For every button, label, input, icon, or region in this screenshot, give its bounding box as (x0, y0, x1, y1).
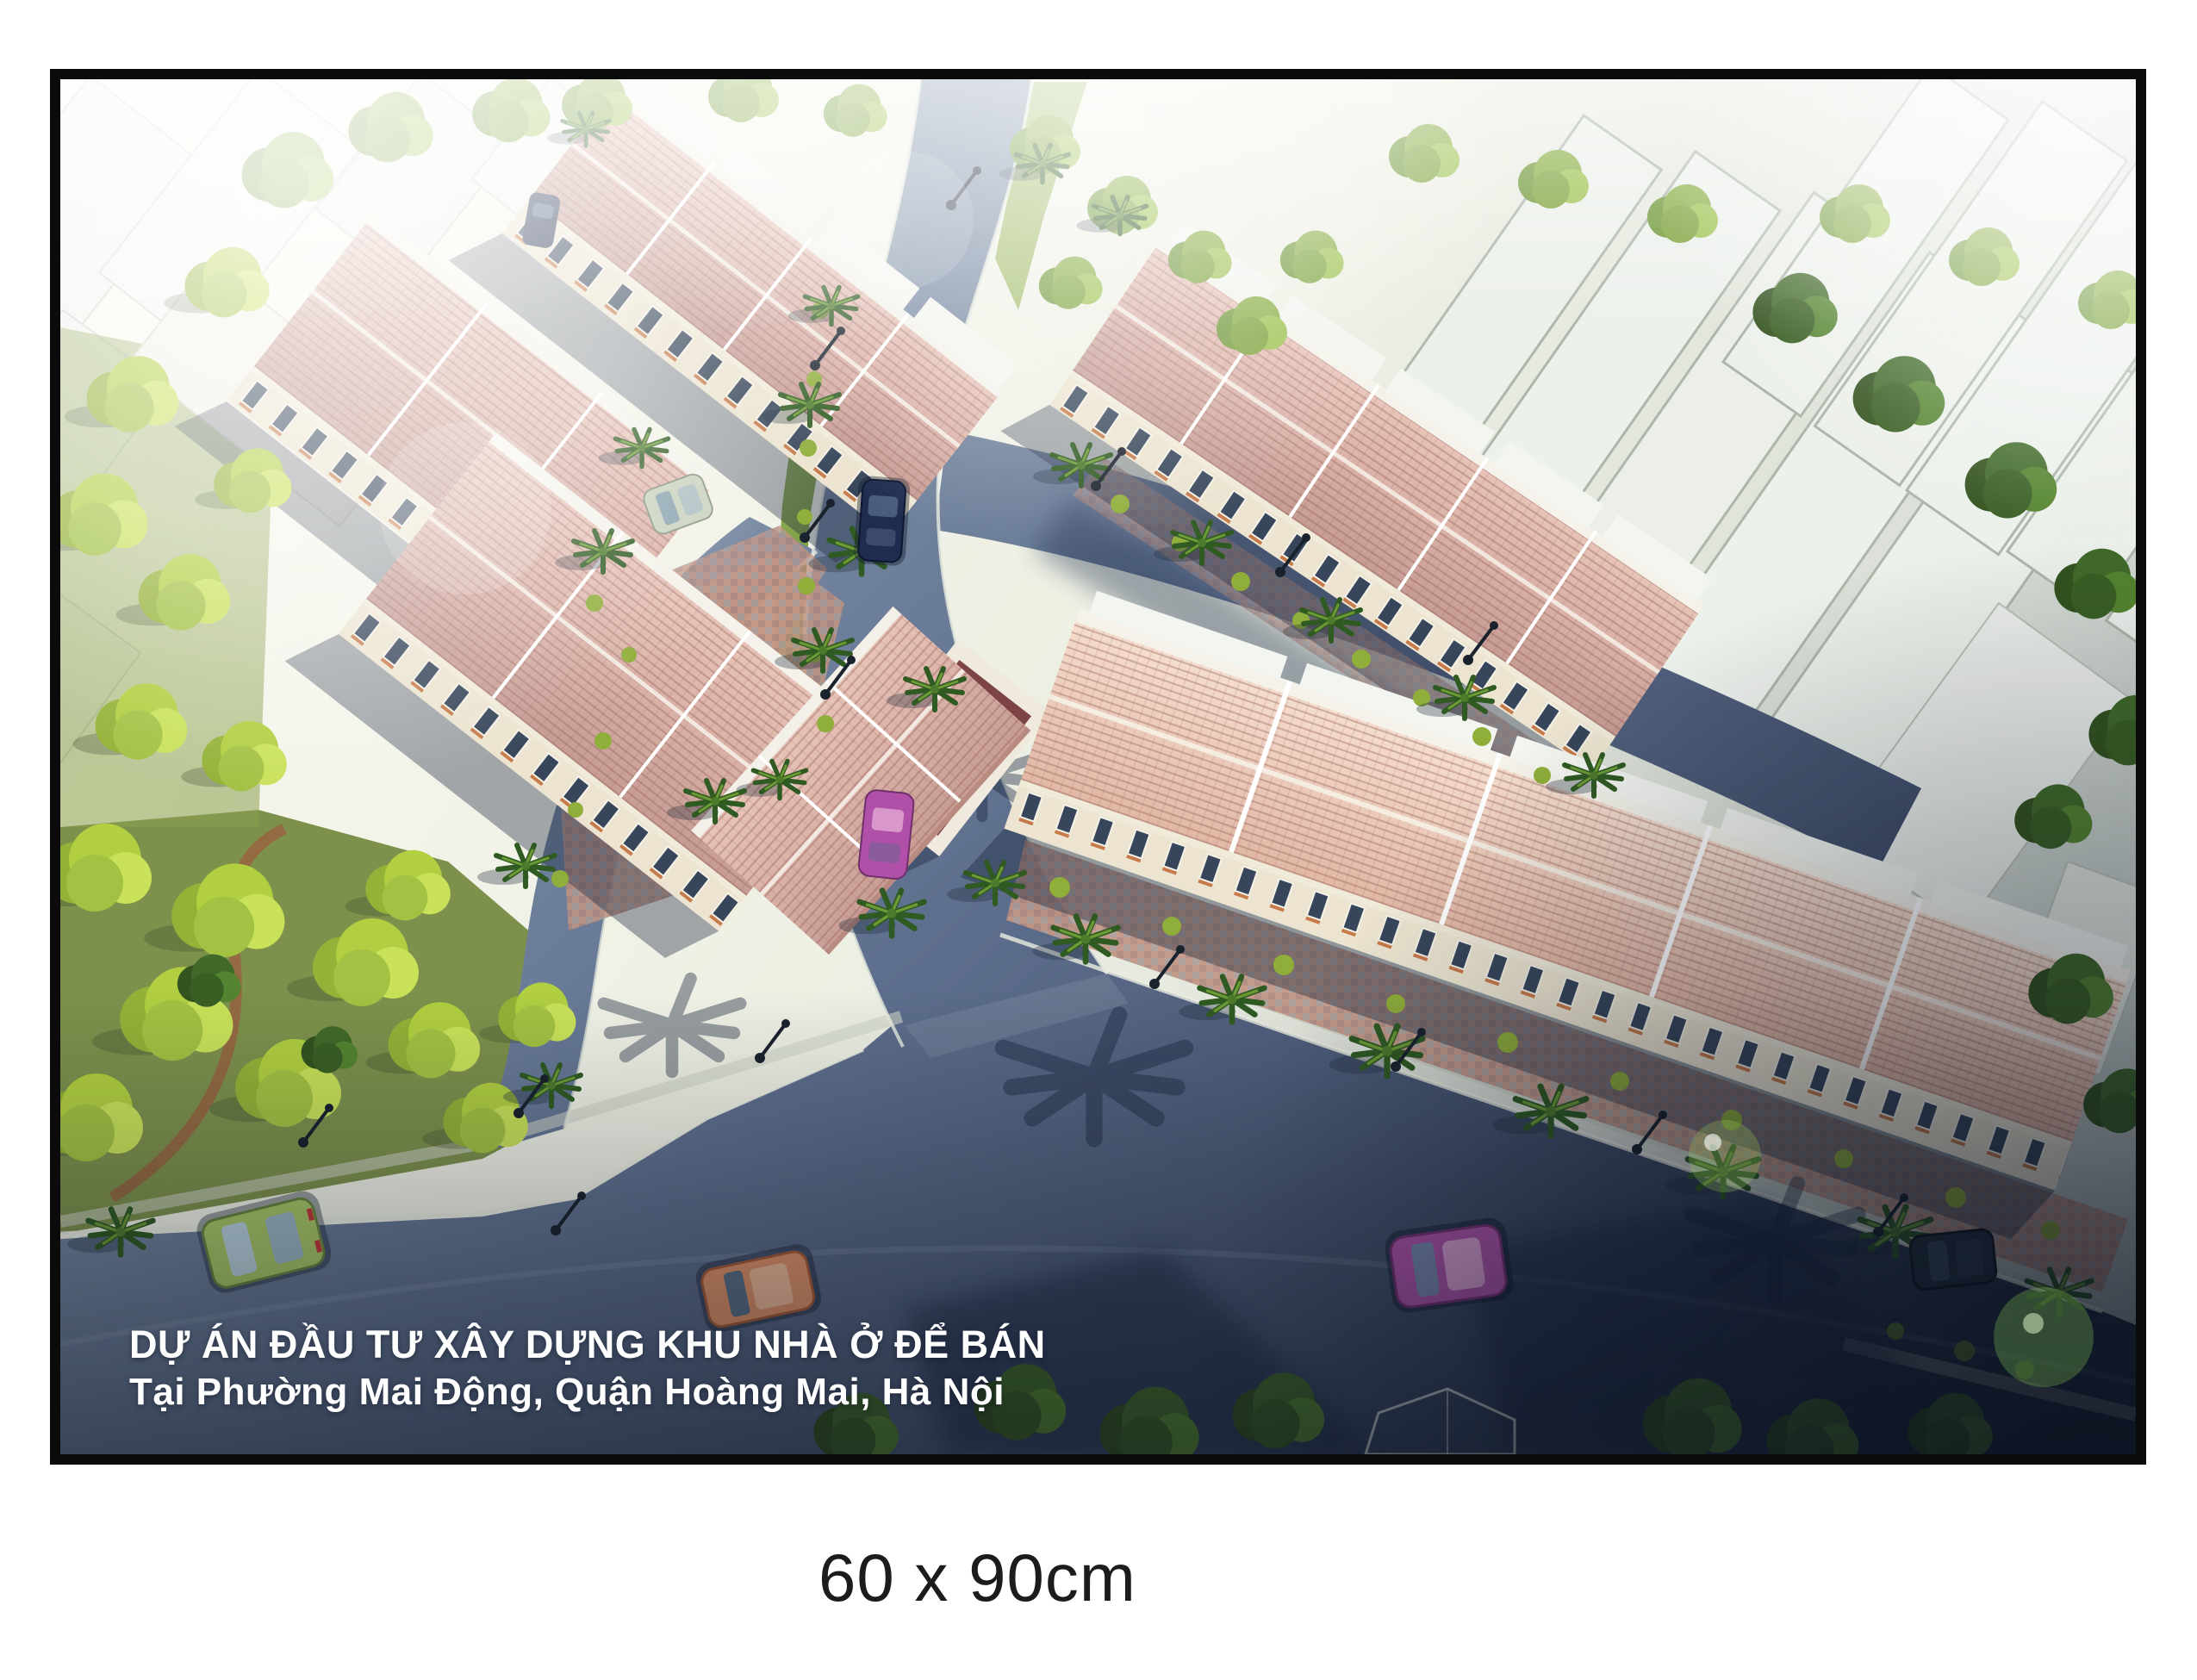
aerial-rendering: DỰ ÁN ĐẦU TƯ XÂY DỰNG KHU NHÀ Ở ĐỂ BÁN T… (60, 79, 2136, 1454)
project-title-line1: DỰ ÁN ĐẦU TƯ XÂY DỰNG KHU NHÀ Ở ĐỂ BÁN (129, 1321, 1046, 1368)
lens-flare (1689, 1120, 1761, 1192)
poster-frame: DỰ ÁN ĐẦU TƯ XÂY DỰNG KHU NHÀ Ở ĐỂ BÁN T… (50, 69, 2146, 1465)
rendering-graphics (60, 79, 2136, 1454)
poster-page: DỰ ÁN ĐẦU TƯ XÂY DỰNG KHU NHÀ Ở ĐỂ BÁN T… (0, 0, 2197, 1680)
project-title-block: DỰ ÁN ĐẦU TƯ XÂY DỰNG KHU NHÀ Ở ĐỂ BÁN T… (129, 1321, 1046, 1416)
project-title-line2: Tại Phường Mai Động, Quận Hoàng Mai, Hà … (129, 1368, 1046, 1416)
light-overlays (60, 79, 2136, 1454)
print-size-label: 60 x 90cm (818, 1539, 1136, 1617)
